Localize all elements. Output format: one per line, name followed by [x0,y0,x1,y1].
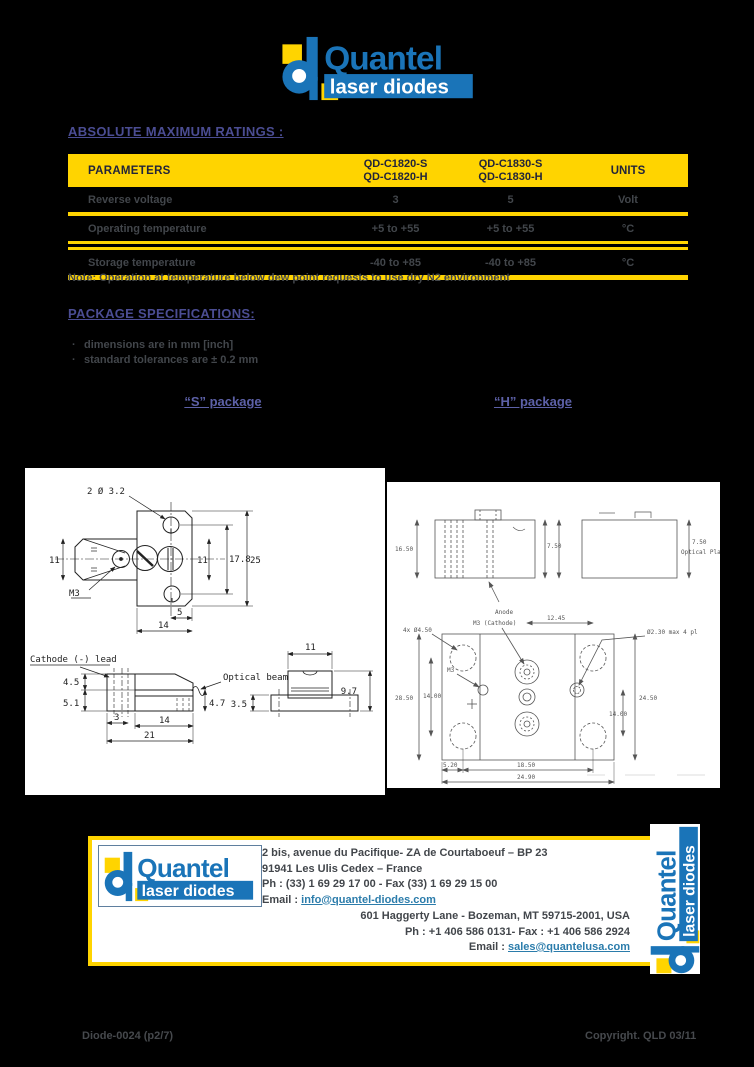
quantel-logo-header [281,36,477,101]
s-side-view [30,665,221,744]
email-label: Email : [262,894,298,906]
col-header-model2: QD-C1830-S QD-C1830-H [453,158,568,184]
col-header-model1: QD-C1820-S QD-C1820-H [338,158,453,184]
doc-reference: Diode-0024 (p2/7) [82,1030,173,1042]
s-package-heading: “S” package [158,394,288,409]
anode-label: Anode [495,609,513,616]
optical-beam-label: Optical beam [223,673,288,683]
optical-plane-label: Optical Plane [681,549,720,556]
email-line: Email : info@quantel-diodes.com [262,893,692,909]
dim-label: 4.7 [209,699,225,709]
dim-label: M3 [447,667,455,674]
s-top-view [55,496,253,634]
holes-label: 4x Ø4.50 [403,627,432,634]
dim-label: 28.50 [395,695,413,702]
h-top-view-labels: M3 (Cathode) 4x Ø4.50 Ø2.30 max 4 pl M3 … [395,615,698,781]
package-section-title: PACKAGE SPECIFICATIONS: [68,306,255,321]
usa-email-link[interactable]: sales@quantelusa.com [508,941,630,953]
footer-usa-contact: 601 Haggerty Lane - Bozeman, MT 59715-20… [192,909,630,956]
address-line: 2 bis, avenue du Pacifique- ZA de Courta… [262,846,692,862]
dim-label: 17.8 [229,555,251,565]
dim-label: 11 [49,556,60,566]
dim-label: 11 [305,643,316,653]
dim-label: 5.20 [443,762,458,769]
copyright-note: Copyright. QLD 03/11 [585,1030,696,1042]
table-row: Operating temperature +5 to +55 +5 to +5… [68,216,688,241]
dim-label: 14.00 [609,711,627,718]
quantel-logo-rotated [650,824,700,974]
dim-label: 12.45 [547,615,565,622]
dim-label: 5.1 [63,699,79,709]
h-side-view-labels: 16.50 7.50 7.50 Optical Plane Anode [395,539,720,616]
dim-label: 14 [158,621,169,631]
phone-line: Ph : (33) 1 69 29 17 00 - Fax (33) 1 69 … [262,877,692,893]
dim-label: 9.7 [341,687,357,697]
address-line: 91941 Les Ulis Cedex – France [262,862,692,878]
col-header-units: UNITS [568,165,688,177]
quantel-logo-rotated-svg [650,824,700,974]
phone-line: Ph : +1 406 586 0131- Fax : +1 406 586 2… [192,925,630,941]
dim-label: 24.90 [517,774,535,781]
h-top-view [419,623,705,784]
email-line: Email : sales@quantelusa.com [192,940,630,956]
h-package-drawing-box: 16.50 7.50 7.50 Optical Plane Anode [387,482,720,788]
dim-label: 2 Ø 3.2 [87,486,125,497]
dim-label: M3 [69,589,80,599]
datasheet-page: Quantel laser diodes ABSOLUTE MAXIMUM RA… [0,0,754,1067]
dim-label: 14 [159,716,170,726]
dim-label: 3 [114,713,119,723]
h-package-drawing: 16.50 7.50 7.50 Optical Plane Anode [387,482,720,788]
dim-label: 14.00 [423,693,441,700]
h-package-heading: “H” package [468,394,598,409]
s-package-drawing: 2 Ø 3.2 M3 11 11 17.8 25 5 14 [25,468,385,795]
list-item: standard tolerances are ± 0.2 mm [70,353,258,368]
dim-label: 11 [197,556,208,566]
dim-label: 5 [177,608,182,618]
dim-label: 7.50 [692,539,707,546]
dim-label: 18.50 [517,762,535,769]
ratings-note: Note: Operation at temperature below dew… [68,272,510,284]
dim-label: 24.50 [639,695,657,702]
address-line: 601 Haggerty Lane - Bozeman, MT 59715-20… [192,909,630,925]
s-end-view [250,651,373,717]
dim-label: 7.50 [547,543,562,550]
france-email-link[interactable]: info@quantel-diodes.com [301,894,436,906]
s-top-view-labels: 2 Ø 3.2 M3 11 11 17.8 25 5 14 [49,486,261,631]
dim-label: 4.5 [63,678,79,688]
ratings-table: PARAMETERS QD-C1820-S QD-C1820-H QD-C183… [68,154,688,280]
s-side-view-labels: Cathode (-) lead Optical beam 4.5 5.1 3 … [30,655,288,741]
h-side-views [417,510,689,602]
s-package-drawing-box: 2 Ø 3.2 M3 11 11 17.8 25 5 14 [25,468,385,795]
footer-contact-box: 2 bis, avenue du Pacifique- ZA de Courta… [88,836,696,966]
package-spec-list: dimensions are in mm [inch] standard tol… [70,338,258,368]
col-header-parameters: PARAMETERS [68,165,338,177]
cathode-lead-label: Cathode (-) lead [30,655,117,665]
m3-cathode-label: M3 (Cathode) [473,620,516,627]
footer-logo-frame [98,845,262,907]
dim-label: 16.50 [395,546,413,553]
quantel-logo-footer [104,851,256,902]
pins-label: Ø2.30 max 4 pl [647,629,698,636]
dim-label: 21 [144,731,155,741]
dim-label: 3.5 [231,700,247,710]
list-item: dimensions are in mm [inch] [70,338,258,353]
dim-label: 25 [250,556,261,566]
ratings-table-header: PARAMETERS QD-C1820-S QD-C1820-H QD-C183… [68,154,688,187]
footer-france-contact: 2 bis, avenue du Pacifique- ZA de Courta… [262,846,692,908]
table-row: Reverse voltage 3 5 Volt [68,187,688,212]
email-label: Email : [469,941,505,953]
ratings-section-title: ABSOLUTE MAXIMUM RATINGS : [68,124,284,139]
